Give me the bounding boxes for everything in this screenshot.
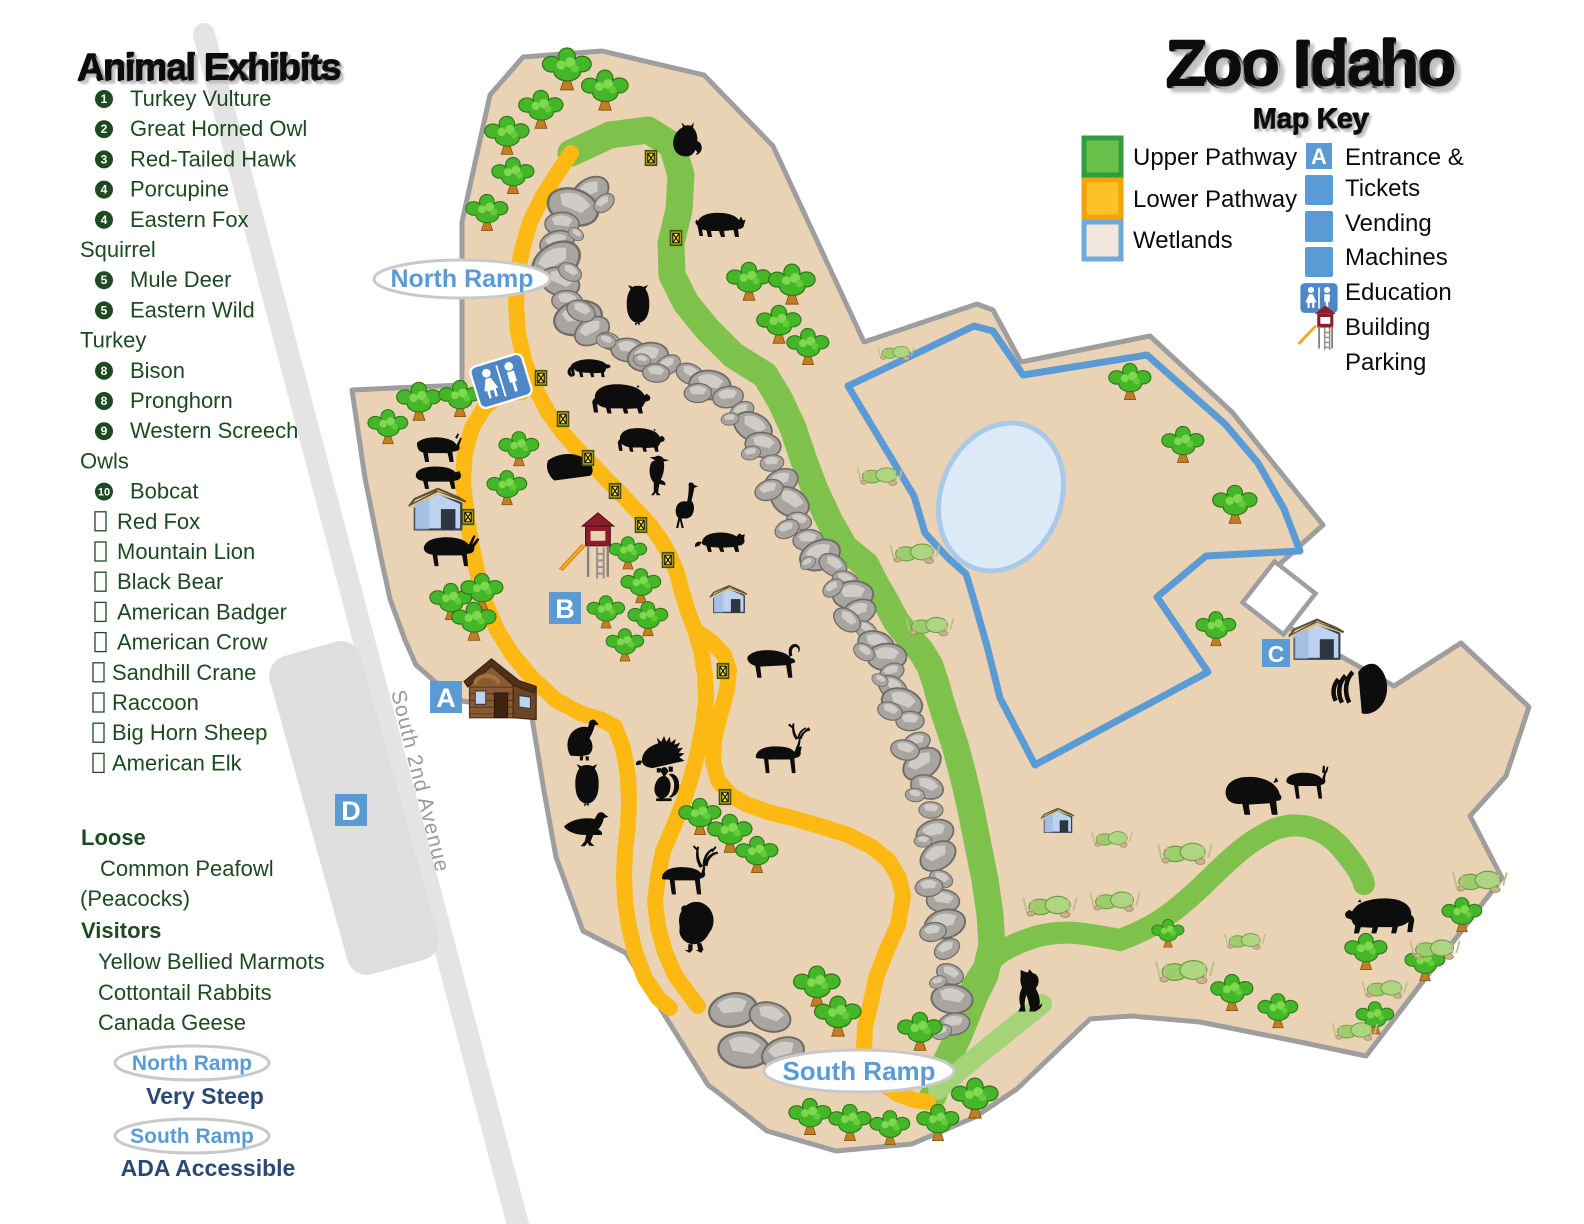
svg-text:D: D	[341, 796, 361, 826]
svg-text:Red-Tailed Hawk: Red-Tailed Hawk	[130, 146, 297, 171]
svg-text:Sandhill Crane: Sandhill Crane	[112, 660, 256, 685]
svg-text:4: 4	[101, 183, 108, 197]
svg-text:Red Fox: Red Fox	[117, 509, 200, 534]
svg-text:Vending: Vending	[1345, 210, 1432, 237]
svg-text:Porcupine: Porcupine	[130, 177, 229, 202]
svg-text:Machines: Machines	[1345, 244, 1448, 271]
svg-text:3: 3	[101, 152, 108, 166]
svg-text:Great Horned Owl: Great Horned Owl	[130, 116, 307, 141]
svg-text:8: 8	[101, 394, 108, 408]
svg-text:Raccoon: Raccoon	[112, 690, 199, 715]
svg-text:2: 2	[101, 122, 108, 136]
svg-text:Squirrel: Squirrel	[80, 237, 156, 262]
svg-text:American Badger: American Badger	[117, 599, 287, 624]
svg-text:B: B	[555, 594, 575, 624]
svg-text:A: A	[1311, 144, 1327, 169]
svg-text:9: 9	[101, 424, 108, 438]
svg-text:Loose: Loose	[81, 825, 146, 850]
svg-text:Turkey: Turkey	[80, 328, 146, 353]
svg-text:Parking: Parking	[1345, 349, 1426, 376]
svg-text:Lower Pathway: Lower Pathway	[1133, 186, 1297, 213]
svg-text:Eastern Wild: Eastern Wild	[130, 297, 255, 322]
svg-text:Turkey Vulture: Turkey Vulture	[130, 86, 271, 111]
svg-text:Cottontail Rabbits: Cottontail Rabbits	[98, 980, 272, 1005]
svg-text:Building: Building	[1345, 314, 1430, 341]
svg-text:American Elk: American Elk	[112, 750, 243, 775]
svg-text:Entrance &: Entrance &	[1345, 144, 1464, 171]
svg-text:Tickets: Tickets	[1345, 175, 1420, 202]
svg-text:Black Bear: Black Bear	[117, 569, 223, 594]
svg-text:Bobcat: Bobcat	[130, 479, 199, 504]
svg-text:South Ramp: South Ramp	[130, 1125, 254, 1148]
svg-text:ADA Accessible: ADA Accessible	[121, 1155, 296, 1181]
svg-text:10: 10	[98, 487, 110, 499]
svg-text:8: 8	[101, 364, 108, 378]
svg-text:Mountain Lion: Mountain Lion	[117, 539, 255, 564]
svg-text:Visitors: Visitors	[81, 918, 161, 943]
svg-text:Zoo Idaho: Zoo Idaho	[1167, 28, 1455, 100]
svg-text:5: 5	[101, 273, 108, 287]
svg-text:Very Steep: Very Steep	[146, 1083, 264, 1109]
svg-text:Education: Education	[1345, 279, 1452, 306]
svg-text:A: A	[436, 683, 456, 713]
svg-text:North Ramp: North Ramp	[390, 265, 533, 293]
svg-text:Pronghorn: Pronghorn	[130, 388, 233, 413]
svg-text:Common Peafowl: Common Peafowl	[100, 856, 274, 881]
svg-text:Wetlands: Wetlands	[1133, 227, 1233, 254]
svg-text:Yellow Bellied Marmots: Yellow Bellied Marmots	[98, 949, 325, 974]
svg-text:North Ramp: North Ramp	[132, 1052, 252, 1075]
svg-text:4: 4	[101, 213, 108, 227]
svg-text:Mule Deer: Mule Deer	[130, 267, 231, 292]
svg-text:Map Key: Map Key	[1253, 103, 1369, 134]
svg-text:Bison: Bison	[130, 358, 185, 383]
svg-text:South Ramp: South Ramp	[782, 1056, 935, 1086]
svg-text:Owls: Owls	[80, 448, 129, 473]
svg-text:Big Horn Sheep: Big Horn Sheep	[112, 720, 267, 745]
svg-text:Animal Exhibits: Animal Exhibits	[78, 47, 341, 88]
svg-text:(Peacocks): (Peacocks)	[80, 886, 190, 911]
svg-text:American Crow: American Crow	[117, 630, 267, 655]
svg-text:1: 1	[101, 92, 108, 106]
svg-text:Canada Geese: Canada Geese	[98, 1010, 246, 1035]
svg-text:5: 5	[101, 303, 108, 317]
svg-text:C: C	[1268, 641, 1285, 667]
svg-text:Upper Pathway: Upper Pathway	[1133, 144, 1297, 171]
svg-text:Western Screech: Western Screech	[130, 418, 298, 443]
svg-text:Eastern Fox: Eastern Fox	[130, 207, 249, 232]
